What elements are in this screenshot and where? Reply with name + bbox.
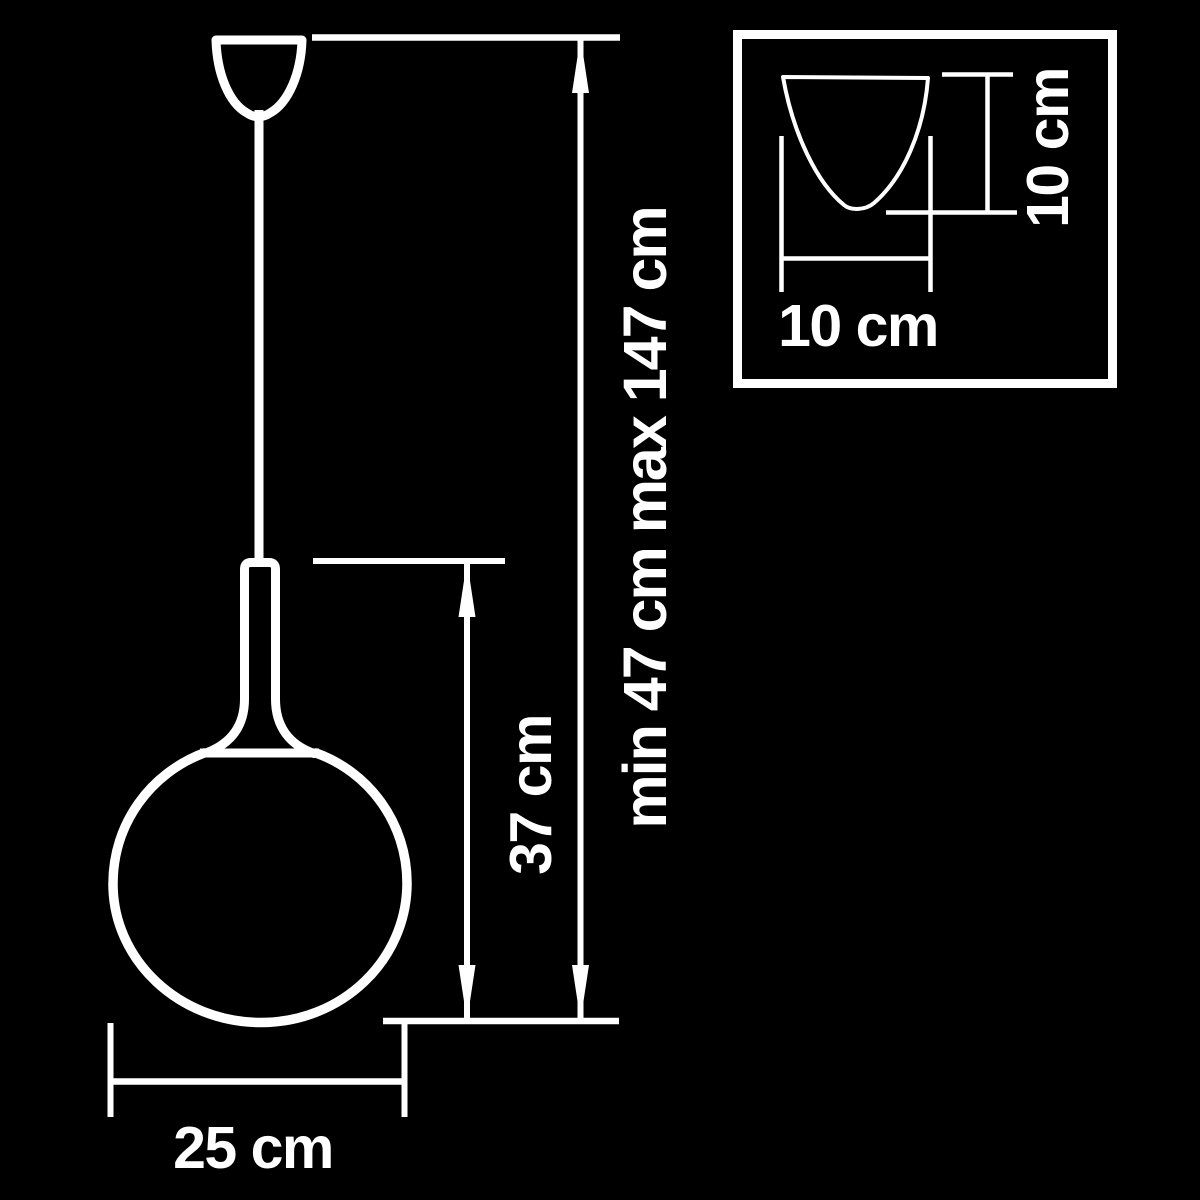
label-canopy-width: 10 cm bbox=[778, 293, 938, 359]
canopy-outline bbox=[216, 40, 302, 117]
label-suspension-range: min 47 cm max 147 cm bbox=[611, 207, 679, 828]
label-canopy-height: 10 cm bbox=[1015, 68, 1081, 228]
arrowhead-up-fixture bbox=[459, 561, 476, 617]
lamp-neck bbox=[206, 563, 314, 754]
pendant-lamp-drawing: min 47 cm max 147 cm 37 cm 25 cm 10 cm 1… bbox=[0, 0, 1200, 1200]
label-fixture-height: 37 cm bbox=[498, 715, 564, 875]
arrowhead-down-suspension bbox=[572, 965, 589, 1021]
label-shade-diameter: 25 cm bbox=[173, 1115, 333, 1181]
suspension-cord bbox=[255, 110, 264, 567]
arrowhead-up-suspension bbox=[572, 37, 589, 93]
arrowhead-down-fixture bbox=[459, 965, 476, 1021]
dimension-diagram: min 47 cm max 147 cm 37 cm 25 cm 10 cm 1… bbox=[0, 0, 1200, 1200]
globe-shade bbox=[113, 753, 407, 1023]
inset-canopy-outline bbox=[783, 77, 928, 209]
